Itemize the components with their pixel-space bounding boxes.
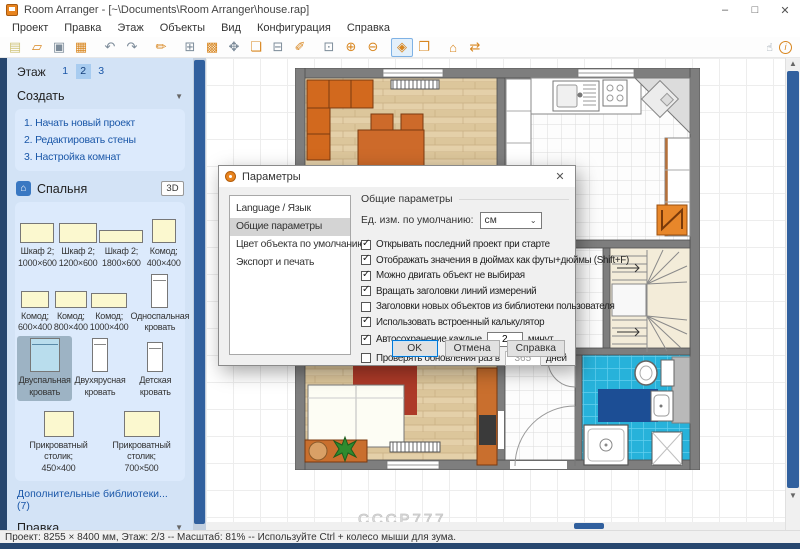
create-step-link[interactable]: 2. Редактировать стены [24,132,176,149]
unit-value: см [485,215,497,226]
furniture-item[interactable]: Двухяруснаякровать [72,336,127,400]
furniture-shape [21,274,49,311]
view-3d-objects-icon: ❐ [418,39,430,55]
furniture-item[interactable]: Односпальнаякровать [129,272,190,336]
checkbox[interactable] [361,271,371,281]
hand-tool-icon[interactable]: ☝ [766,41,773,54]
zoom-window-icon[interactable]: ⊡ [318,38,340,57]
furniture-item[interactable]: Комод;800×400 [53,272,89,336]
furniture-item[interactable]: Двуспальнаякровать [17,336,72,400]
furniture-label: Комод; [57,311,85,323]
add-object-icon: ❏ [250,39,262,55]
share-icon[interactable]: ⇄ [464,38,486,57]
brush-icon: ✏ [156,39,167,55]
create-section-title: Создать [17,89,65,103]
dialog-tab-0[interactable]: Language / Язык [230,200,350,218]
furniture-label: Двухярусная [74,375,125,387]
furniture-label: кровать [29,387,60,399]
print-icon[interactable]: ▦ [70,38,92,57]
menu-item-Конфигурация[interactable]: Конфигурация [249,20,339,37]
furniture-label: 450×400 [42,463,76,475]
sidebar-scrollbar[interactable] [193,58,206,530]
dialog-titlebar[interactable]: Параметры ✕ [219,166,575,187]
furniture-row: ДвуспальнаякроватьДвухяруснаякроватьДетс… [17,336,183,400]
sidebar: Этаж 123 Создать ▼ 1. Начать новый проек… [7,58,193,530]
edit-walls-icon[interactable]: ⊞ [179,38,201,57]
dialog-title: Параметры [242,171,301,183]
create-section-header[interactable]: Создать ▼ [7,82,193,106]
status-text: Проект: 8255 × 8400 мм, Этаж: 2/3 -- Мас… [5,532,456,543]
chair [401,114,423,130]
furniture-shape [99,209,143,246]
dialog-category-list: Language / ЯзыкОбщие параметрыЦвет объек… [229,195,351,355]
titlebar: Room Arranger - [~\Documents\Room Arrang… [0,0,800,20]
checkbox[interactable] [361,317,371,327]
sofa [307,80,373,108]
toolbar: ▤▱▣▦↶↷✏⊞▩✥❏⊟✐⊡⊕⊖◈❐⌂⇄☝i [0,37,800,58]
zoom-window-icon: ⊡ [324,39,335,55]
furniture-row: Прикроватныйстолик;450×400Прикроватныйст… [17,401,183,477]
dialog-close-icon[interactable]: ✕ [545,170,575,183]
furniture-shape-cab [99,230,143,243]
chevron-down-icon: ▼ [175,523,183,530]
furniture-label: кровать [85,387,116,399]
furniture-shape [92,338,108,375]
furniture-item[interactable]: Прикроватныйстолик;700×500 [100,401,183,477]
furniture-shape-cab [55,291,87,308]
unit-dropdown[interactable]: см ⌄ [480,212,542,229]
checkbox[interactable] [361,286,371,296]
checkbox-row: Открывать последний проект при старте [361,237,569,253]
create-step-link[interactable]: 3. Настройка комнат [24,149,176,166]
dining-table [358,130,424,166]
autosave-checkbox[interactable] [361,335,371,345]
checkbox-label: Отображать значения в дюймах как футы+дю… [376,255,629,266]
open-project-icon[interactable]: ▱ [26,38,48,57]
draw-wall-icon: ✐ [295,39,306,55]
furniture-shape [151,274,168,311]
furniture-panel: Шкаф 2;1000×600Шкаф 2;1200×600Шкаф 2;180… [15,202,185,480]
furniture-label: Детская [139,375,171,387]
menu-item-Проект[interactable]: Проект [4,20,56,37]
furniture-label: Двуспальная [19,375,71,387]
chevron-down-icon: ▼ [175,92,183,101]
zoom-out-icon[interactable]: ⊖ [362,38,384,57]
info-icon[interactable]: i [779,41,792,54]
undo-icon[interactable]: ↶ [99,38,121,57]
furniture-label: столик; [44,451,73,463]
library-title: Спальня [37,182,87,196]
dialog-tab-2[interactable]: Цвет объекта по умолчанию [230,236,350,254]
zoom-in-icon: ⊕ [346,39,357,55]
bath-rug [598,389,658,422]
chair [371,114,393,130]
bath-counter [672,357,690,423]
furniture-row: Комод;600×400Комод;800×400Комод;1000×400… [17,272,183,336]
bedroom-library-icon: ⌂ [16,181,31,196]
furniture-shape [147,338,163,375]
hob [603,80,627,106]
furniture-label: 1800×600 [102,258,141,270]
furniture-label: Прикроватный [29,440,87,452]
scroll-up-icon[interactable]: ▲ [786,58,800,70]
checkbox-label: Заголовки новых объектов из библиотеки п… [376,301,615,312]
tall-cabinet [506,79,531,174]
furniture-item[interactable]: Комод;400×400 [144,207,183,271]
create-panel: 1. Начать новый проект2. Редактировать с… [15,109,185,171]
furniture-label: 1200×600 [59,258,98,270]
furniture-label: кровать [144,322,175,334]
redo-icon: ↷ [127,39,138,55]
furniture-label: Комод; [21,311,49,323]
floor-button-1[interactable]: 1 [58,64,73,79]
furniture-label: Комод; [95,311,123,323]
menu-item-Справка[interactable]: Справка [339,20,398,37]
share-icon: ⇄ [470,39,481,55]
sidebar-scrollbar-thumb[interactable] [194,60,205,524]
furniture-item[interactable]: Комод;1000×400 [89,272,130,336]
settings-dialog: Параметры ✕ Language / ЯзыкОбщие парамет… [218,165,576,366]
toilet-bowl [635,361,657,385]
furniture-shape-bed [92,338,108,372]
floor-button-2[interactable]: 2 [76,64,91,79]
levels-icon[interactable]: ⌂ [442,38,464,57]
add-object-icon[interactable]: ❏ [245,38,267,57]
horizontal-scrollbar-thumb[interactable] [574,523,604,529]
edit-section-header[interactable]: Правка ▼ [7,514,193,530]
checkbox-label: Вращать заголовки линий измерений [376,286,536,297]
coverings-icon: ▩ [206,39,218,55]
move-object-icon: ✥ [229,39,240,55]
more-libraries-link[interactable]: Дополнительные библиотеки... (7) [17,488,183,512]
dialog-tab-1[interactable]: Общие параметры [230,218,350,236]
checkbox-row: Отображать значения в дюймах как футы+дю… [361,253,569,269]
view-3d-library-button[interactable]: 3D [161,181,184,196]
furniture-label: Шкаф 2; [105,246,138,258]
dialog-tab-3[interactable]: Экспорт и печать [230,254,350,272]
move-object-icon[interactable]: ✥ [223,38,245,57]
furniture-label: Комод; [150,246,178,258]
furniture-shape-bed [147,342,163,372]
furniture-shape-bed [151,274,168,308]
furniture-label: 1000×600 [18,258,57,270]
app-window: Room Arranger - [~\Documents\Room Arrang… [0,0,800,549]
furniture-label: 800×400 [54,322,88,334]
save-icon: ▣ [53,39,65,55]
furniture-shape-cab [124,411,160,437]
furniture-shape-cab [152,219,176,243]
help-button[interactable]: Справка [507,340,565,357]
furniture-label: 600×400 [18,322,52,334]
view-3d-objects-icon[interactable]: ❐ [413,38,435,57]
zoom-out-icon: ⊖ [368,39,379,55]
checkbox-row: Заголовки новых объектов из библиотеки п… [361,299,569,315]
furniture-item[interactable]: Шкаф 2;1000×600 [17,207,58,271]
furniture-row: Шкаф 2;1000×600Шкаф 2;1200×600Шкаф 2;180… [17,207,183,271]
window-title: Room Arranger - [~\Documents\Room Arrang… [24,4,309,16]
dialog-icon [225,171,236,182]
furniture-label: столик; [127,451,156,463]
checkbox-label: Можно двигать объект не выбирая [376,270,525,281]
draw-wall-icon[interactable]: ✐ [289,38,311,57]
furniture-shape-cab [59,223,97,243]
furniture-shape [124,403,160,440]
view-3d-icon: ◈ [397,39,407,55]
floor-button-3[interactable]: 3 [94,64,109,79]
furniture-item[interactable]: Прикроватныйстолик;450×400 [17,401,100,477]
furniture-shape [30,338,60,375]
new-project-icon[interactable]: ▤ [4,38,26,57]
furniture-shape-cab [20,223,54,243]
furniture-shape [55,274,87,311]
menu-item-Объекты[interactable]: Объекты [152,20,213,37]
edit-walls-icon: ⊞ [185,39,196,55]
undo-icon: ↶ [105,39,116,55]
unit-label: Ед. изм. по умолчанию: [361,215,474,226]
checkbox-row: Использовать встроенный калькулятор [361,315,569,331]
open-project-icon: ▱ [32,39,42,55]
minimize-button[interactable]: – [710,0,740,20]
edit-section-title: Правка [17,521,59,530]
furniture-label: 400×400 [147,258,181,270]
furniture-shape [152,209,176,246]
cancel-button[interactable]: Отмена [445,340,500,357]
furniture-item[interactable]: Комод;600×400 [17,272,53,336]
menu-item-Этаж[interactable]: Этаж [109,20,151,37]
menubar: ПроектПравкаЭтажОбъектыВидКонфигурацияСп… [0,20,800,37]
furniture-item[interactable]: Детскаякровать [128,336,183,400]
floor-label: Этаж [17,65,46,79]
furniture-shape-cab [91,293,127,308]
zoom-in-icon[interactable]: ⊕ [340,38,362,57]
furniture-item[interactable]: Шкаф 2;1200×600 [58,207,99,271]
horizontal-scrollbar[interactable] [206,522,785,530]
checkbox[interactable] [361,255,371,265]
menu-item-Вид[interactable]: Вид [213,20,249,37]
furniture-label: 700×500 [125,463,159,475]
redo-icon[interactable]: ↷ [121,38,143,57]
window-frame [0,543,800,549]
check-updates-checkbox[interactable] [361,353,371,363]
toilet-tank [661,360,674,386]
checkbox-label: Открывать последний проект при старте [376,239,550,250]
side-table [309,442,327,460]
checkbox[interactable] [361,240,371,250]
radiator [390,442,440,452]
furniture-label: Прикроватный [112,440,170,452]
furniture-label: кровать [140,387,171,399]
radiator [391,80,439,89]
checkbox-row: Вращать заголовки линий измерений [361,284,569,300]
furniture-label: Шкаф 2; [21,246,54,258]
furniture-shape-cab [21,291,49,308]
furniture-shape [59,209,97,246]
new-project-icon: ▤ [9,39,21,55]
levels-icon: ⌂ [449,40,457,55]
furniture-label: Шкаф 2; [61,246,94,258]
ok-button[interactable]: OK [392,340,438,357]
scroll-down-icon[interactable]: ▼ [786,490,800,502]
coverings-icon[interactable]: ▩ [201,38,223,57]
checkbox-label: Использовать встроенный калькулятор [376,317,544,328]
furniture-shape [44,403,74,440]
furniture-shape-cab [44,411,74,437]
add-furniture-icon: ⊟ [273,39,284,55]
vertical-scrollbar-thumb[interactable] [787,71,799,488]
furniture-shape [91,274,127,311]
maximize-button[interactable]: □ [740,0,770,20]
furniture-shape [20,209,54,246]
add-furniture-icon[interactable]: ⊟ [267,38,289,57]
menu-item-Правка[interactable]: Правка [56,20,109,37]
checkbox-row: Можно двигать объект не выбирая [361,268,569,284]
vertical-scrollbar[interactable]: ▲ ▼ [785,58,800,530]
save-icon[interactable]: ▣ [48,38,70,57]
statusbar: Проект: 8255 × 8400 мм, Этаж: 2/3 -- Мас… [0,530,800,543]
app-icon [6,4,18,16]
print-icon: ▦ [75,39,87,55]
tv [479,415,496,445]
chevron-down-icon: ⌄ [530,216,537,225]
furniture-item[interactable]: Шкаф 2;1800×600 [98,207,144,271]
brush-icon[interactable]: ✏ [150,38,172,57]
view-3d-icon[interactable]: ◈ [391,38,413,57]
furniture-label: Односпальная [130,311,189,323]
furniture-shape-bedsel [30,338,60,372]
create-step-link[interactable]: 1. Начать новый проект [24,115,176,132]
group-title: Общие параметры [361,193,453,205]
furniture-label: 1000×400 [90,322,129,334]
checkbox[interactable] [361,302,371,312]
toolbar-right: ☝i [766,41,800,54]
close-button[interactable]: ✕ [770,0,800,20]
